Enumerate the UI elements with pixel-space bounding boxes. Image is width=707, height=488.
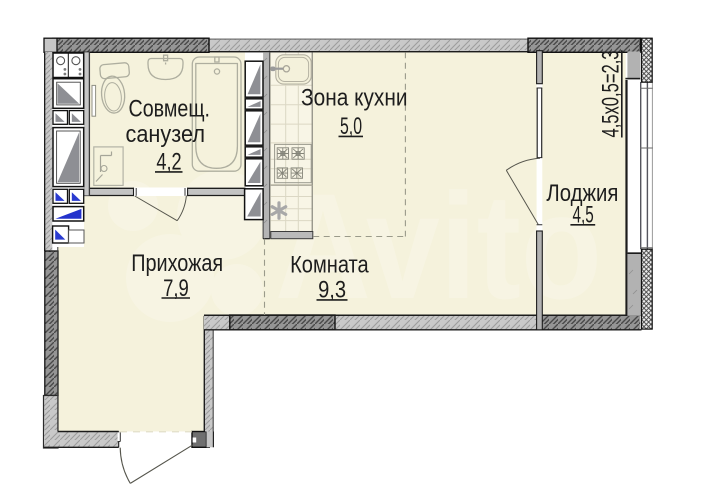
- svg-text:санузел: санузел: [126, 121, 206, 148]
- svg-text:4,5х0,5=2,3: 4,5х0,5=2,3: [598, 51, 625, 138]
- svg-text:Прихожая: Прихожая: [131, 250, 223, 277]
- svg-text:Совмещ.: Совмещ.: [129, 96, 211, 123]
- svg-text:Зона кухни: Зона кухни: [301, 84, 408, 111]
- svg-text:Комната: Комната: [290, 252, 369, 279]
